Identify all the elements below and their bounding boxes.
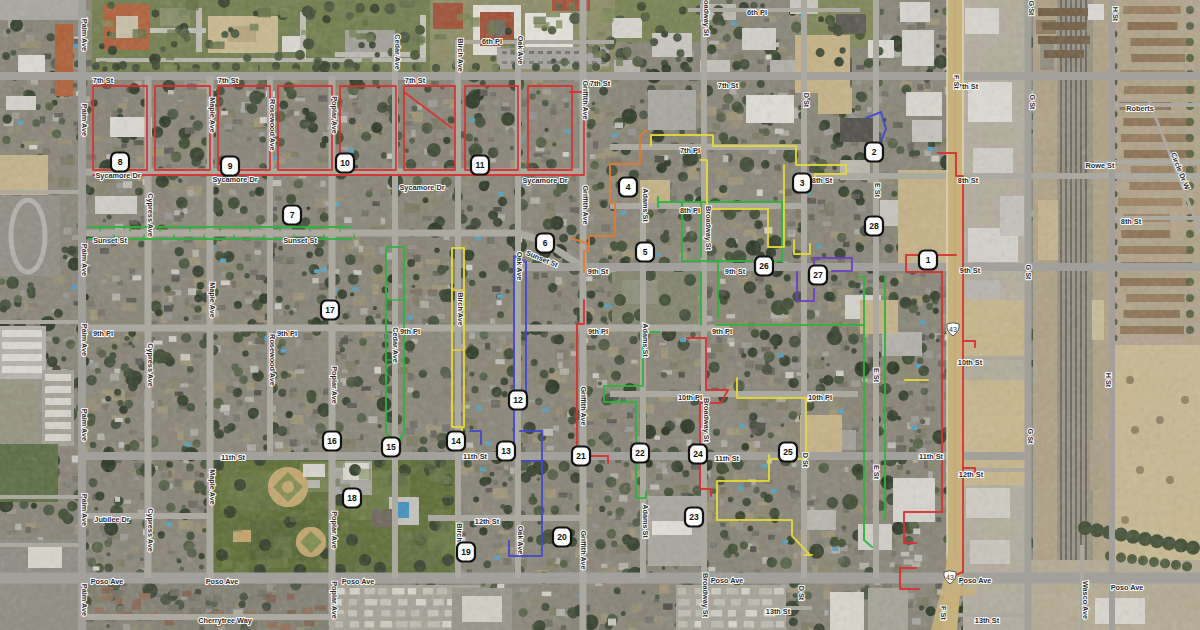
svg-text:18: 18: [347, 493, 357, 503]
svg-text:Cypress Ave: Cypress Ave: [146, 343, 155, 387]
svg-text:12: 12: [513, 395, 523, 405]
svg-text:10: 10: [340, 158, 350, 168]
svg-text:5: 5: [643, 247, 648, 257]
svg-text:19: 19: [461, 547, 471, 557]
svg-text:8th Pl: 8th Pl: [680, 206, 700, 215]
svg-text:16: 16: [327, 436, 337, 446]
svg-text:10th Pl: 10th Pl: [678, 393, 702, 402]
svg-text:9th Pl: 9th Pl: [277, 329, 297, 338]
svg-text:Broadway St: Broadway St: [704, 206, 713, 251]
svg-text:11th St: 11th St: [463, 452, 487, 461]
svg-text:26: 26: [759, 261, 769, 271]
svg-text:Cedar Ave: Cedar Ave: [391, 327, 400, 363]
svg-text:9th Pl: 9th Pl: [588, 327, 608, 336]
svg-text:23: 23: [689, 512, 699, 522]
svg-text:15: 15: [386, 442, 396, 452]
svg-text:7: 7: [290, 210, 295, 220]
svg-text:Palm Ave: Palm Ave: [80, 324, 89, 356]
svg-text:10th Pl: 10th Pl: [808, 393, 832, 402]
svg-text:D St: D St: [802, 93, 811, 108]
svg-text:14: 14: [451, 436, 461, 446]
svg-text:6: 6: [543, 238, 548, 248]
svg-text:Sycamore Dr: Sycamore Dr: [399, 183, 444, 192]
svg-text:Poso Ave: Poso Ave: [91, 577, 124, 586]
svg-text:Poso Ave: Poso Ave: [711, 576, 744, 585]
svg-text:Maple Ave: Maple Ave: [208, 282, 217, 318]
svg-text:Poplar Ave: Poplar Ave: [330, 581, 339, 619]
svg-text:7th St: 7th St: [718, 81, 739, 90]
svg-text:24: 24: [693, 449, 703, 459]
svg-text:Poplar Ave: Poplar Ave: [330, 96, 339, 134]
svg-text:11th St: 11th St: [919, 452, 943, 461]
svg-text:Birch Ave: Birch Ave: [456, 292, 465, 326]
svg-text:Birch Ave: Birch Ave: [456, 38, 465, 72]
svg-text:H St: H St: [1111, 7, 1120, 22]
svg-text:12th St: 12th St: [475, 517, 500, 526]
svg-text:G St: G St: [1024, 265, 1033, 281]
svg-text:Sycamore Dr: Sycamore Dr: [522, 176, 567, 185]
svg-text:7th St: 7th St: [218, 76, 239, 85]
svg-text:Broadway St: Broadway St: [702, 0, 711, 37]
svg-text:8th St: 8th St: [1121, 217, 1142, 226]
svg-text:7th St: 7th St: [93, 76, 114, 85]
svg-text:Adams St: Adams St: [641, 323, 650, 357]
svg-text:Palm Ave: Palm Ave: [80, 19, 89, 51]
svg-text:Cherrytree Way: Cherrytree Way: [198, 616, 253, 625]
svg-text:10th St: 10th St: [958, 358, 983, 367]
svg-text:20: 20: [557, 532, 567, 542]
svg-text:25: 25: [783, 447, 793, 457]
svg-text:G St: G St: [1028, 95, 1037, 111]
svg-text:9th St: 9th St: [960, 266, 981, 275]
svg-text:Maple Ave: Maple Ave: [208, 97, 217, 133]
svg-text:17: 17: [325, 305, 335, 315]
svg-text:Palm Ave: Palm Ave: [80, 244, 89, 276]
svg-text:9th Pl: 9th Pl: [400, 327, 420, 336]
svg-text:8th St: 8th St: [812, 176, 833, 185]
svg-text:9th Pl: 9th Pl: [93, 329, 113, 338]
svg-text:Rowe St: Rowe St: [1086, 161, 1115, 170]
svg-text:7th St: 7th St: [590, 79, 611, 88]
svg-text:F St: F St: [952, 75, 961, 89]
svg-text:43: 43: [949, 326, 957, 333]
svg-text:9th St: 9th St: [725, 267, 746, 276]
svg-text:Cedar Ave: Cedar Ave: [393, 34, 402, 70]
svg-text:Poso Ave: Poso Ave: [959, 576, 992, 585]
svg-text:13th St: 13th St: [766, 607, 791, 616]
svg-text:Griffith Ave: Griffith Ave: [579, 386, 588, 425]
svg-text:Griffith Ave: Griffith Ave: [581, 185, 590, 224]
svg-text:Poplar Ave: Poplar Ave: [330, 511, 339, 549]
svg-text:12th St: 12th St: [959, 470, 984, 479]
svg-text:43: 43: [946, 574, 954, 581]
svg-text:E St: E St: [872, 465, 881, 480]
svg-text:E St: E St: [873, 183, 882, 198]
svg-text:28: 28: [869, 221, 879, 231]
svg-text:Oak Ave: Oak Ave: [516, 36, 525, 65]
svg-text:G St: G St: [1026, 429, 1035, 445]
svg-text:E St: E St: [872, 368, 881, 383]
svg-text:7th Pl: 7th Pl: [680, 146, 700, 155]
svg-text:Oak Ave: Oak Ave: [516, 526, 525, 555]
svg-text:Cypress Ave: Cypress Ave: [146, 193, 155, 237]
svg-text:Palm Ave: Palm Ave: [80, 584, 89, 616]
svg-text:13: 13: [501, 446, 511, 456]
svg-text:G St: G St: [1027, 1, 1036, 17]
svg-text:Jubilee Dr: Jubilee Dr: [94, 515, 129, 524]
svg-text:9th Pl: 9th Pl: [712, 327, 732, 336]
svg-text:6th Pl: 6th Pl: [482, 37, 502, 46]
svg-text:D St: D St: [797, 586, 806, 601]
svg-text:Broadway St: Broadway St: [702, 398, 711, 443]
svg-text:Poplar Ave: Poplar Ave: [330, 366, 339, 404]
svg-text:1: 1: [926, 255, 931, 265]
svg-text:Sunset St: Sunset St: [283, 236, 317, 245]
svg-text:Griffith Ave: Griffith Ave: [579, 530, 588, 569]
svg-text:Palm Ave: Palm Ave: [80, 494, 89, 526]
svg-text:F St: F St: [939, 606, 948, 620]
svg-text:11: 11: [476, 160, 485, 170]
svg-text:27: 27: [813, 270, 823, 280]
svg-text:Oak Ave: Oak Ave: [515, 252, 524, 281]
svg-text:Wasco Ave: Wasco Ave: [1081, 581, 1090, 619]
svg-text:Maple Ave: Maple Ave: [208, 469, 217, 505]
svg-text:Poso Ave: Poso Ave: [206, 577, 239, 586]
svg-text:8: 8: [118, 157, 123, 167]
svg-text:Palm Ave: Palm Ave: [80, 409, 89, 441]
svg-text:22: 22: [635, 448, 645, 458]
svg-text:Rosewood Ave: Rosewood Ave: [268, 334, 277, 386]
svg-text:H St: H St: [1104, 373, 1113, 388]
svg-text:13th St: 13th St: [975, 616, 1000, 625]
svg-text:Griffith Ave: Griffith Ave: [581, 80, 590, 119]
svg-text:Poso Ave: Poso Ave: [1111, 583, 1144, 592]
svg-text:Broadway St: Broadway St: [701, 573, 710, 618]
svg-text:3: 3: [800, 178, 805, 188]
svg-text:9th St: 9th St: [588, 267, 609, 276]
svg-text:11th St: 11th St: [715, 454, 739, 463]
svg-text:Sunset St: Sunset St: [93, 236, 127, 245]
svg-text:2: 2: [872, 147, 877, 157]
svg-text:Roberts: Roberts: [1126, 104, 1154, 113]
svg-text:11th St: 11th St: [221, 453, 245, 462]
svg-text:Cypress Ave: Cypress Ave: [146, 508, 155, 552]
svg-text:8th St: 8th St: [958, 176, 979, 185]
svg-text:Palm Ave: Palm Ave: [80, 104, 89, 136]
svg-text:7th St: 7th St: [405, 76, 426, 85]
svg-text:9: 9: [228, 161, 233, 171]
svg-text:Poso Ave: Poso Ave: [342, 577, 375, 586]
svg-text:21: 21: [576, 451, 586, 461]
svg-text:Adams St: Adams St: [641, 504, 650, 538]
svg-text:Adams St: Adams St: [641, 188, 650, 222]
svg-text:6th Pl: 6th Pl: [747, 8, 767, 17]
svg-text:D St: D St: [801, 453, 810, 468]
svg-text:4: 4: [626, 182, 631, 192]
svg-text:Rosewood Ave: Rosewood Ave: [268, 99, 277, 151]
